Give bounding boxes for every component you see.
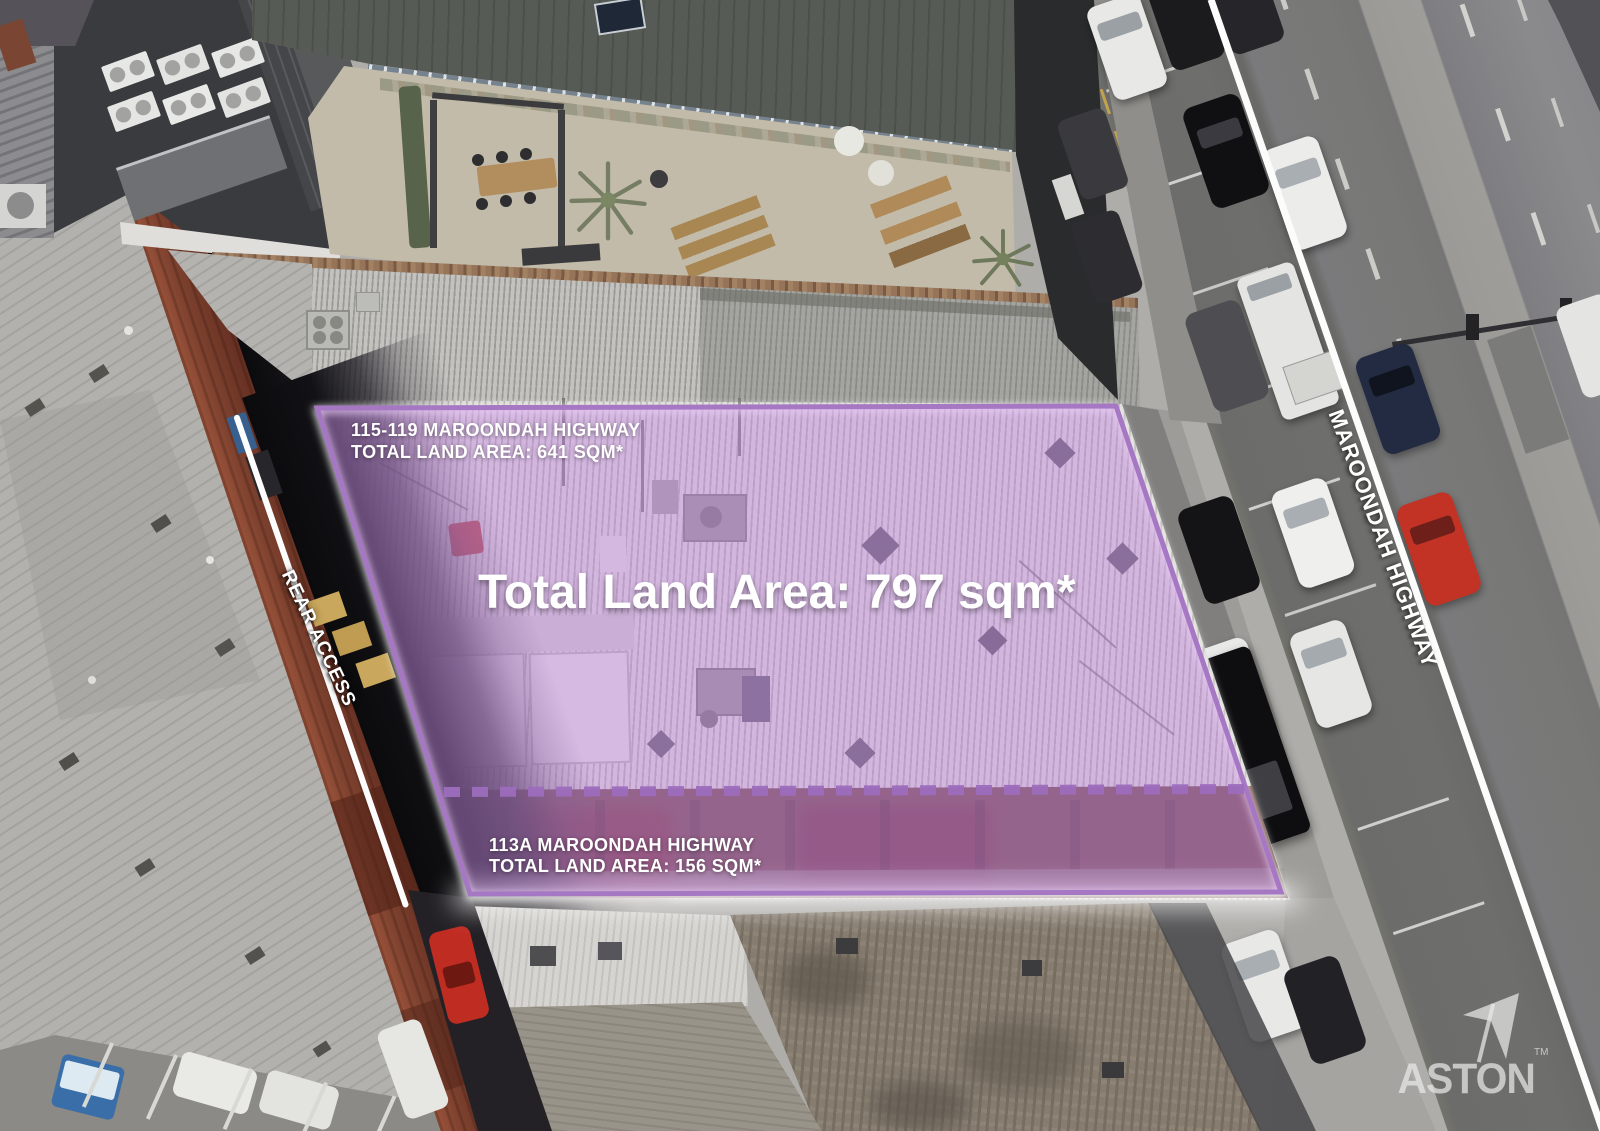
svg-text:ASTON: ASTON <box>1398 1054 1535 1100</box>
svg-text:TM: TM <box>1534 1047 1548 1058</box>
